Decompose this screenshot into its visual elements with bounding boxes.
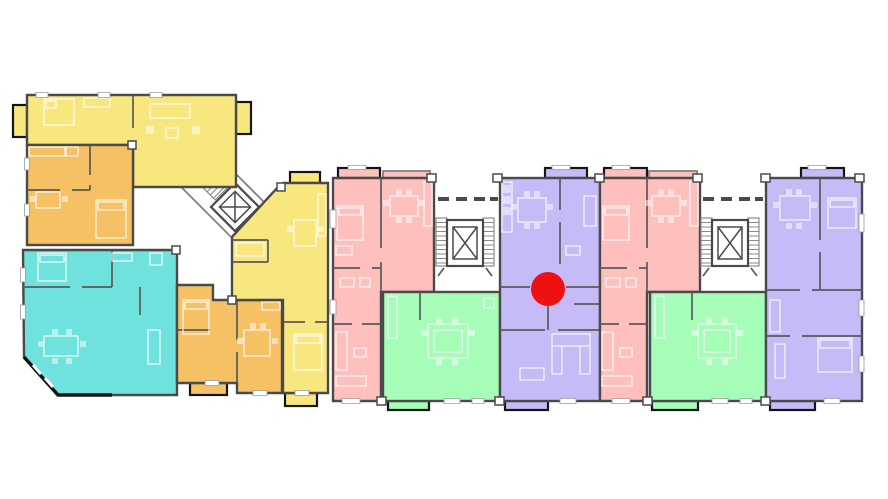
floor-plan-svg	[0, 0, 888, 499]
unit-teal-1-floor[interactable]	[23, 250, 177, 395]
dashed-wall	[703, 197, 763, 201]
unit-purple-right[interactable]	[766, 168, 862, 410]
unit-green-1[interactable]	[383, 292, 500, 410]
unit-orange-1-floor[interactable]	[27, 145, 133, 245]
balcony	[290, 172, 320, 183]
unit-green-2[interactable]	[650, 292, 766, 410]
unit-teal-1[interactable]	[23, 250, 177, 395]
stair-flight-icon	[483, 218, 494, 266]
balcony	[13, 105, 27, 137]
balcony	[652, 401, 698, 410]
dashed-wall	[438, 197, 498, 201]
selected-unit-marker[interactable]	[531, 272, 565, 306]
unit-green-2-floor[interactable]	[650, 292, 766, 401]
stair-flight-icon	[748, 218, 759, 266]
balcony	[505, 401, 548, 410]
unit-green-1-floor[interactable]	[383, 292, 500, 401]
elevator-lobby-1	[436, 197, 498, 276]
balcony	[770, 401, 815, 410]
door-swing-marks	[703, 268, 757, 276]
unit-orange-1[interactable]	[27, 145, 133, 245]
stair-flight-icon	[701, 218, 712, 266]
floor-plan-canvas	[0, 0, 888, 499]
door-swing-marks	[438, 268, 492, 276]
elevator-lobby-2	[701, 197, 763, 276]
balcony	[236, 102, 251, 134]
stair-flight-icon	[436, 218, 447, 266]
balcony	[388, 401, 429, 410]
